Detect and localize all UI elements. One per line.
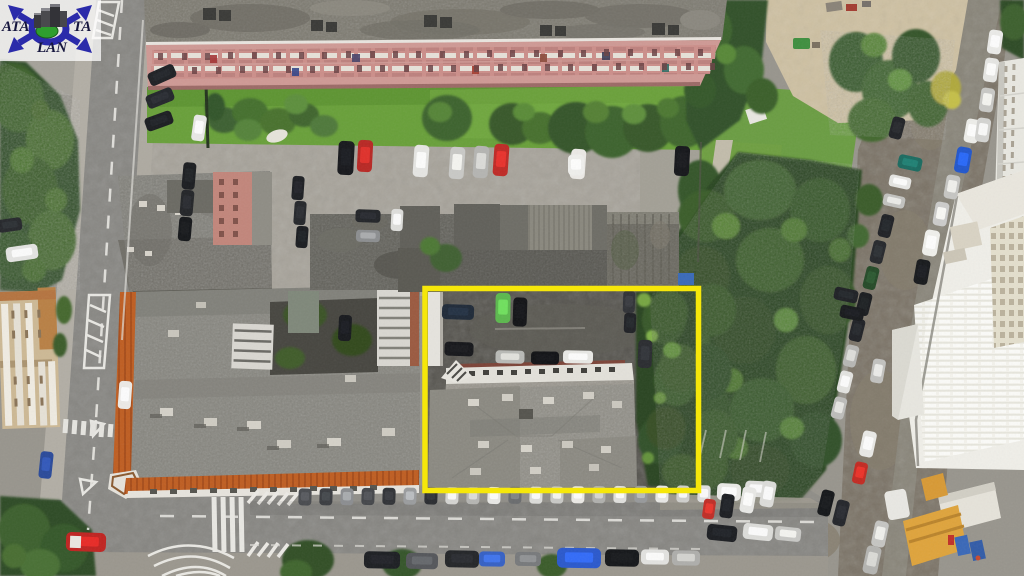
svg-text:LAN: LAN xyxy=(36,40,68,56)
svg-text:ATA: ATA xyxy=(1,19,30,35)
svg-text:TA: TA xyxy=(73,19,91,35)
